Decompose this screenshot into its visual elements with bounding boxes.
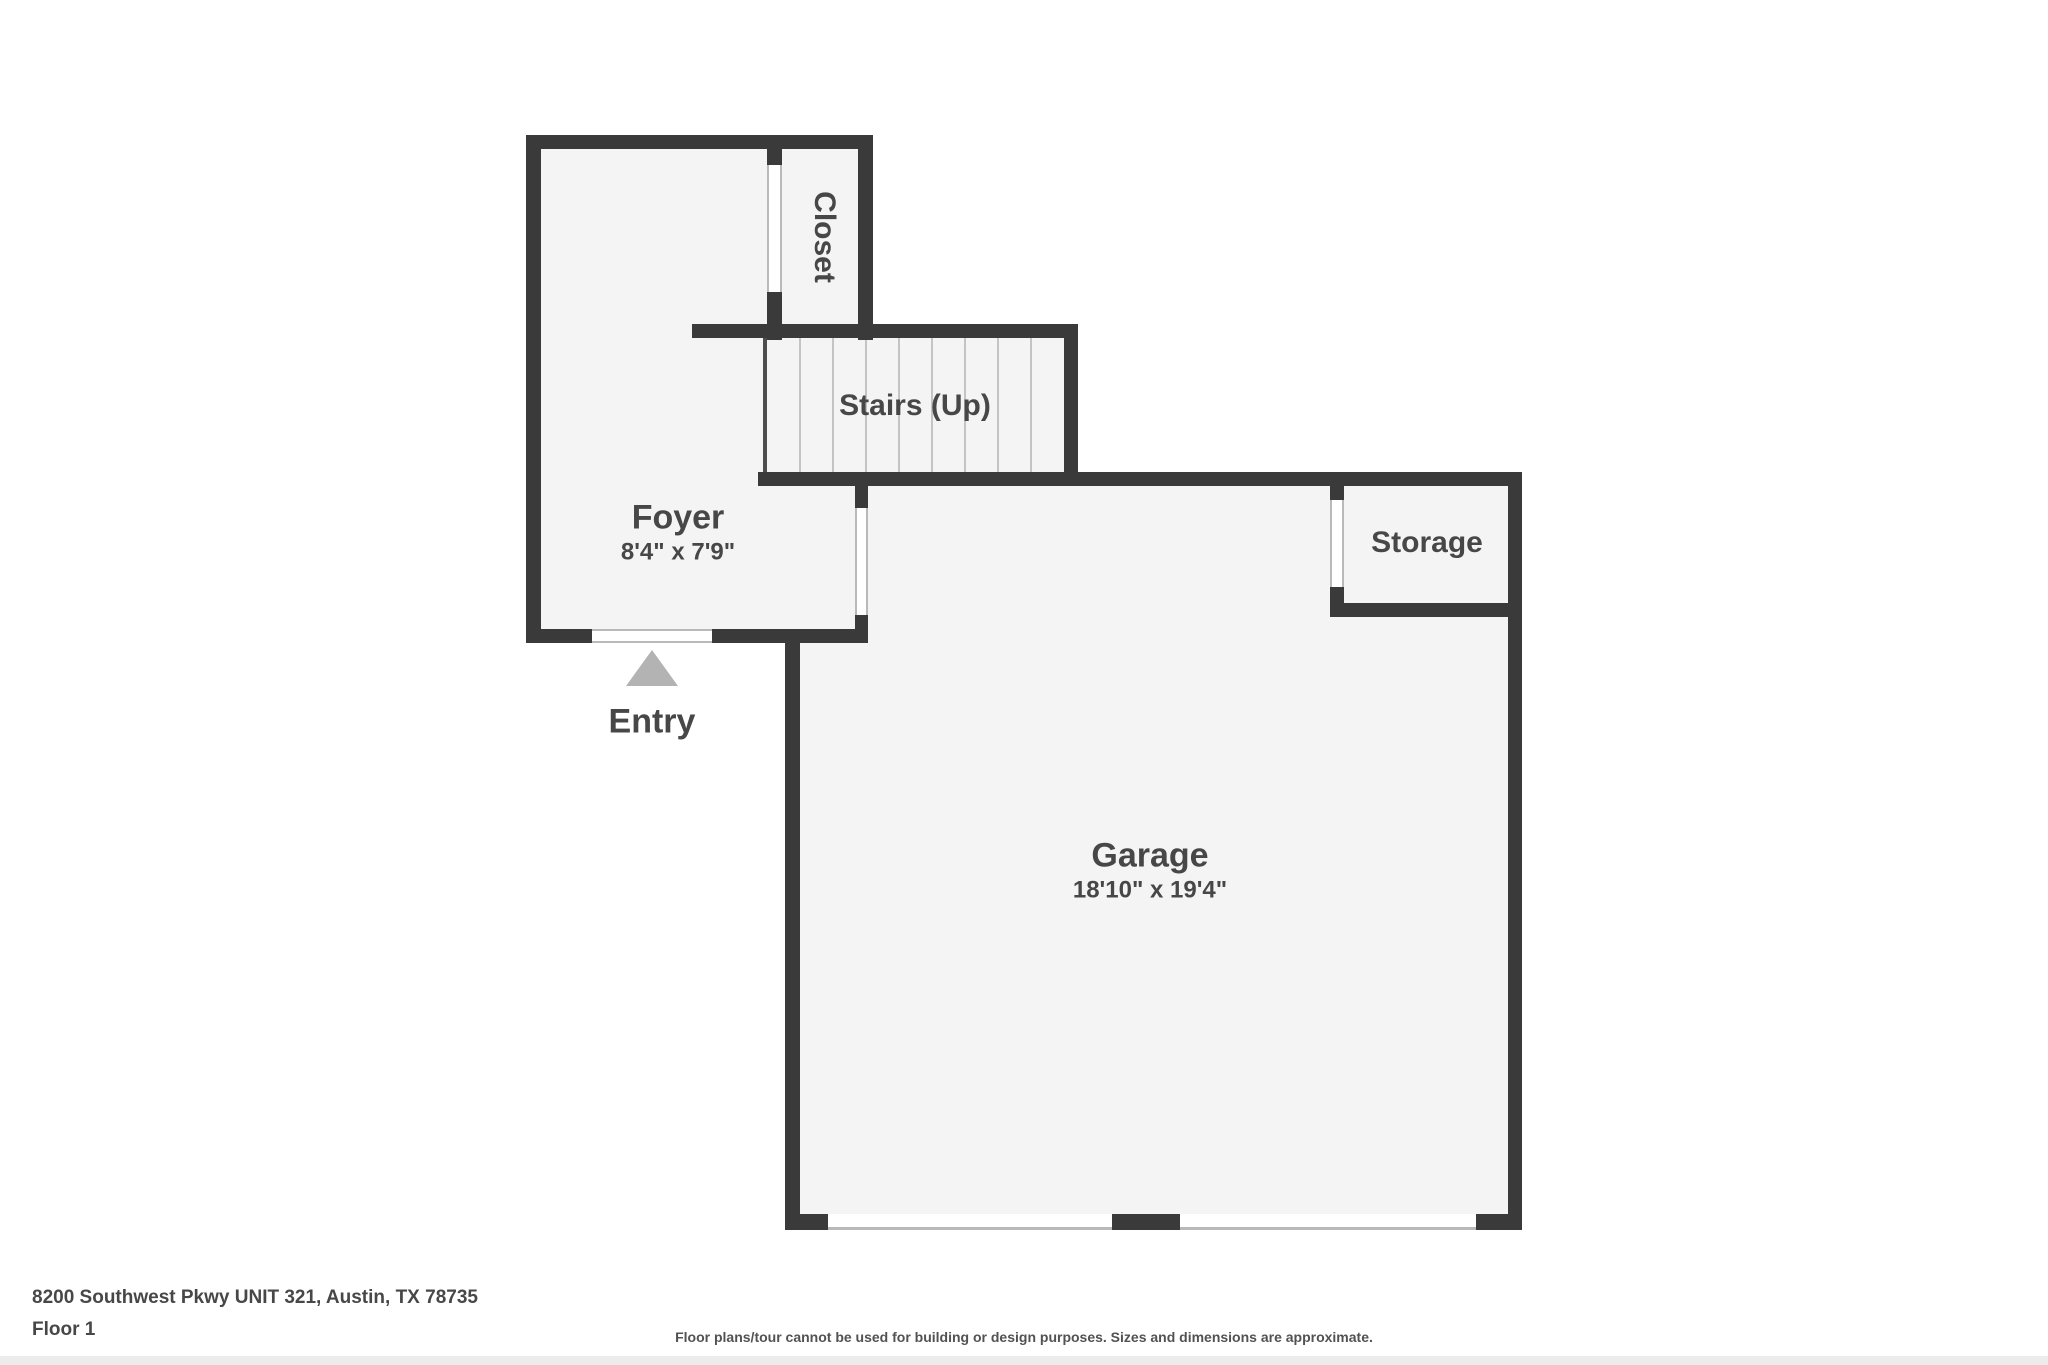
wall-storage-bottom — [1330, 603, 1522, 617]
garage-door-opening-right — [1180, 1214, 1476, 1230]
wall-stairs-right — [1064, 324, 1078, 486]
foyer-name: Foyer — [621, 498, 735, 537]
garage-name: Garage — [1073, 836, 1227, 875]
disclaimer-text: Floor plans/tour cannot be used for buil… — [0, 1329, 2048, 1345]
room-label-garage: Garage 18'10" x 19'4" — [1073, 836, 1227, 905]
stairs-edge-line — [763, 338, 767, 472]
bottom-strip — [0, 1356, 2048, 1365]
closet-door-opening — [767, 165, 782, 292]
stair-tread-line — [832, 338, 834, 472]
entry-door-opening — [592, 629, 712, 643]
room-label-closet: Closet — [807, 191, 841, 283]
foyer-dimensions: 8'4" x 7'9" — [621, 538, 735, 568]
floor-plan-page: Closet Stairs (Up) Storage Foyer 8'4" x … — [0, 0, 2048, 1365]
wall-closet-right — [858, 135, 873, 340]
garage-dimensions: 18'10" x 19'4" — [1073, 876, 1227, 906]
property-address: 8200 Southwest Pkwy UNIT 321, Austin, TX… — [32, 1287, 478, 1309]
garage-door-opening-left — [828, 1214, 1112, 1230]
wall-foyer-top — [526, 135, 873, 149]
room-label-storage: Storage — [1371, 526, 1483, 560]
entry-label: Entry — [609, 703, 696, 742]
wall-garage-left — [785, 629, 800, 1230]
room-label-stairs: Stairs (Up) — [839, 389, 991, 423]
wall-garage-right — [1508, 472, 1522, 1230]
stair-tread-line — [997, 338, 999, 472]
room-label-foyer: Foyer 8'4" x 7'9" — [621, 498, 735, 567]
wall-garage-top — [758, 472, 1522, 486]
foyer-garage-door-opening — [855, 508, 868, 615]
entry-arrow-icon — [626, 650, 678, 686]
storage-door-opening — [1330, 500, 1344, 587]
wall-foyer-left — [526, 135, 541, 643]
stair-tread-line — [1030, 338, 1032, 472]
wall-stairs-top — [692, 324, 1078, 338]
stair-tread-line — [799, 338, 801, 472]
